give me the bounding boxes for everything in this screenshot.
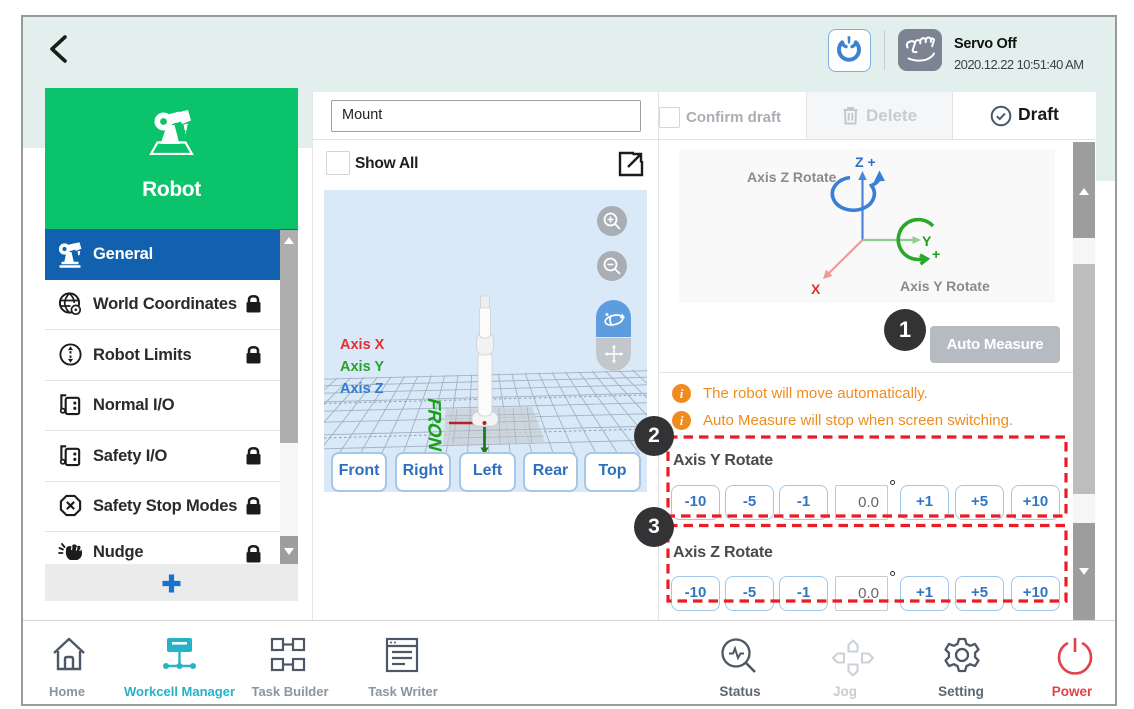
svg-text:Axis Z Rotate: Axis Z Rotate [747,169,837,185]
svg-text:Axis Y Rotate: Axis Y Rotate [900,278,990,294]
svg-text:Z +: Z + [855,154,876,170]
svg-text:Axis X: Axis X [340,337,385,353]
svg-text:Y: Y [922,233,932,249]
svg-text:Axis Z: Axis Z [340,381,384,397]
svg-text:X: X [811,281,821,297]
svg-text:Axis Y: Axis Y [340,359,384,375]
svg-text:+: + [932,246,940,262]
